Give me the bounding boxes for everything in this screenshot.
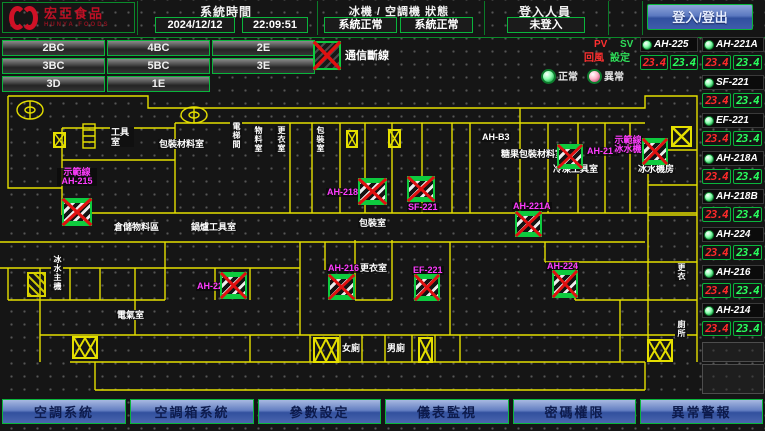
unit-pv-value: 23.4	[702, 283, 731, 298]
nav-hvac-system-button[interactable]: 空調系統	[2, 399, 126, 424]
unit-sv-value: 23.4	[733, 131, 762, 146]
unit-sv-value: 23.4	[733, 245, 762, 260]
room-label: 更衣	[675, 263, 687, 281]
room-label: 女廁	[341, 343, 361, 353]
zone-button-2bc[interactable]: 2BC	[2, 40, 105, 56]
zone-button-2e[interactable]: 2E	[212, 40, 315, 56]
shaft-icon	[27, 272, 46, 297]
zone-button-5bc[interactable]: 5BC	[107, 58, 210, 74]
unit-sv-value: 23.4	[733, 207, 762, 222]
elevator-icon	[53, 132, 66, 148]
room-label: 鍋爐工具室	[190, 222, 237, 232]
status-led-icon	[704, 40, 714, 50]
unit-name: AH-225	[654, 39, 688, 50]
nav-parameter-set-button[interactable]: 參數設定	[258, 399, 381, 424]
normal-led-icon	[541, 69, 556, 84]
room-label: 倉儲物料區	[113, 222, 160, 232]
unit-name: EF-221	[716, 115, 749, 126]
empty-unit-slot	[702, 342, 764, 362]
unit-ah-218b[interactable]: AH-218B	[702, 189, 764, 204]
nav-ahu-system-button[interactable]: 空調箱系統	[130, 399, 254, 424]
login-logout-button[interactable]: 登入/登出	[647, 4, 753, 30]
plan-ahu-label: SF-221	[407, 203, 439, 212]
plan-ahu-label: 示範線 冰水機	[613, 136, 643, 154]
status-led-icon	[704, 230, 714, 240]
pv-header: PV	[594, 39, 607, 51]
unit-ah-221a[interactable]: AH-221A	[702, 37, 764, 52]
room-label: 包裝材料室	[158, 139, 205, 149]
unit-name: AH-221A	[716, 39, 758, 50]
status-led-icon	[704, 306, 714, 316]
zone-button-1e[interactable]: 1E	[107, 76, 210, 92]
elevator-icon	[388, 129, 401, 148]
login-status-value: 未登入	[507, 17, 585, 33]
comm-fault-icon	[313, 41, 341, 70]
unit-ah-214[interactable]: AH-214	[702, 303, 764, 318]
plan-ahu-chiller[interactable]	[642, 138, 668, 165]
pv-column-label: 回風	[584, 53, 604, 65]
unit-sv-value: 23.4	[733, 55, 762, 70]
plan-ahu-ah-224[interactable]	[552, 270, 578, 298]
room-label: 工具室	[110, 127, 134, 147]
plan-ahu-label: AH-221A	[512, 202, 552, 211]
unit-pv-value: 23.4	[702, 55, 731, 70]
company-logo: 宏亞食品 HUNYA FOODS	[2, 2, 135, 33]
room-label: 包裝室	[358, 218, 387, 228]
zone-button-4bc[interactable]: 4BC	[107, 40, 210, 56]
unit-sv-value: 23.4	[733, 321, 762, 336]
plan-ahu-ah-218a[interactable]	[358, 178, 387, 205]
unit-sf-221[interactable]: SF-221	[702, 75, 764, 90]
zone-button-3d[interactable]: 3D	[2, 76, 105, 92]
unit-name: AH-218B	[716, 191, 758, 202]
header-bar: 宏亞食品 HUNYA FOODS 系統時間 2024/12/12 22:09:5…	[0, 0, 765, 38]
unit-pv-value: 23.4	[702, 321, 731, 336]
plan-ahu-ah-216[interactable]	[328, 274, 355, 300]
elevator-icon	[418, 337, 433, 363]
zone-button-3e[interactable]: 3E	[212, 58, 315, 74]
elevator-icon	[671, 126, 692, 147]
logo-subtitle: HUNYA FOODS	[44, 22, 110, 28]
sv-header: SV	[620, 39, 633, 51]
stairwell-icon	[72, 336, 98, 359]
nav-alarm-button[interactable]: 異常警報	[640, 399, 763, 424]
zone-button-3bc[interactable]: 3BC	[2, 58, 105, 74]
status-led-icon	[704, 192, 714, 202]
unit-pv-value: 23.4	[702, 93, 731, 108]
unit-sv-value: 23.4	[733, 283, 762, 298]
room-label: 電氣室	[116, 310, 145, 320]
status-led-icon	[642, 40, 652, 50]
time-value: 22:09:51	[242, 17, 308, 33]
plan-ahu-ah-214[interactable]	[557, 144, 583, 169]
room-label: 冰水機房	[637, 164, 675, 174]
abnormal-led-icon	[587, 69, 602, 84]
room-label: 更衣室	[359, 263, 388, 273]
normal-legend-label: 正常	[558, 72, 578, 84]
nav-meter-monitor-button[interactable]: 儀表監視	[385, 399, 509, 424]
abnormal-legend-label: 異常	[604, 72, 624, 84]
elevator-icon	[346, 130, 358, 148]
unit-pv-value: 23.4	[702, 169, 731, 184]
plan-ahu-sf-221[interactable]	[407, 176, 435, 202]
room-label: 包裝室	[314, 126, 326, 153]
unit-name: AH-224	[716, 229, 750, 240]
unit-ah-225[interactable]: AH-225	[640, 37, 698, 52]
unit-sv-value: 23.4	[733, 93, 762, 108]
unit-ah-218a[interactable]: AH-218A	[702, 151, 764, 166]
status-led-icon	[704, 78, 714, 88]
unit-pv-value: 23.4	[640, 55, 668, 70]
comm-fault-label: 通信斷線	[345, 50, 389, 62]
unit-name: AH-214	[716, 305, 750, 316]
status-led-icon	[704, 116, 714, 126]
unit-pv-value: 23.4	[702, 245, 731, 260]
plan-ahu-label: 示範線 AH-215	[57, 168, 97, 186]
plan-ahu-label: AH-216	[327, 264, 360, 273]
room-label: 廁所	[675, 320, 687, 338]
room-label: 冰水主機	[51, 255, 63, 291]
empty-unit-slot	[702, 364, 764, 394]
unit-sv-value: 23.4	[733, 169, 762, 184]
plan-ahu-ah-221a[interactable]	[515, 211, 542, 237]
status-led-icon	[704, 268, 714, 278]
plan-ahu-ah-225[interactable]	[220, 272, 247, 299]
unit-ah-224[interactable]: AH-224	[702, 227, 764, 242]
unit-sv-value: 23.4	[670, 55, 698, 70]
unit-ah-216[interactable]: AH-216	[702, 265, 764, 280]
chiller-status-value: 系統正常	[324, 17, 397, 33]
plan-ahu-ah-215[interactable]	[62, 198, 92, 226]
stairwell-icon	[313, 337, 339, 363]
room-label: 糖果包裝材料室	[500, 149, 565, 159]
room-label: 男廁	[386, 343, 406, 353]
ac-status-value: 系統正常	[400, 17, 473, 33]
room-label: 物料室	[252, 126, 264, 153]
nav-password-auth-button[interactable]: 密碼權限	[513, 399, 636, 424]
sv-column-label: 設定	[610, 53, 630, 65]
unit-pv-value: 23.4	[702, 131, 731, 146]
unit-ef-221[interactable]: EF-221	[702, 113, 764, 128]
unit-name: AH-216	[716, 267, 750, 278]
status-led-icon	[704, 154, 714, 164]
logo-title: 宏亞食品	[44, 7, 110, 20]
date-value: 2024/12/12	[155, 17, 235, 33]
room-label: 電梯間	[230, 122, 242, 149]
unit-name: SF-221	[716, 77, 749, 88]
stairwell-icon	[647, 339, 673, 362]
unit-name: AH-218A	[716, 153, 758, 164]
room-label: AH-B3	[481, 132, 511, 142]
plan-ahu-ef-221[interactable]	[414, 274, 440, 301]
logo-icon	[9, 6, 39, 30]
unit-pv-value: 23.4	[702, 207, 731, 222]
room-label: 更衣室	[275, 126, 287, 153]
